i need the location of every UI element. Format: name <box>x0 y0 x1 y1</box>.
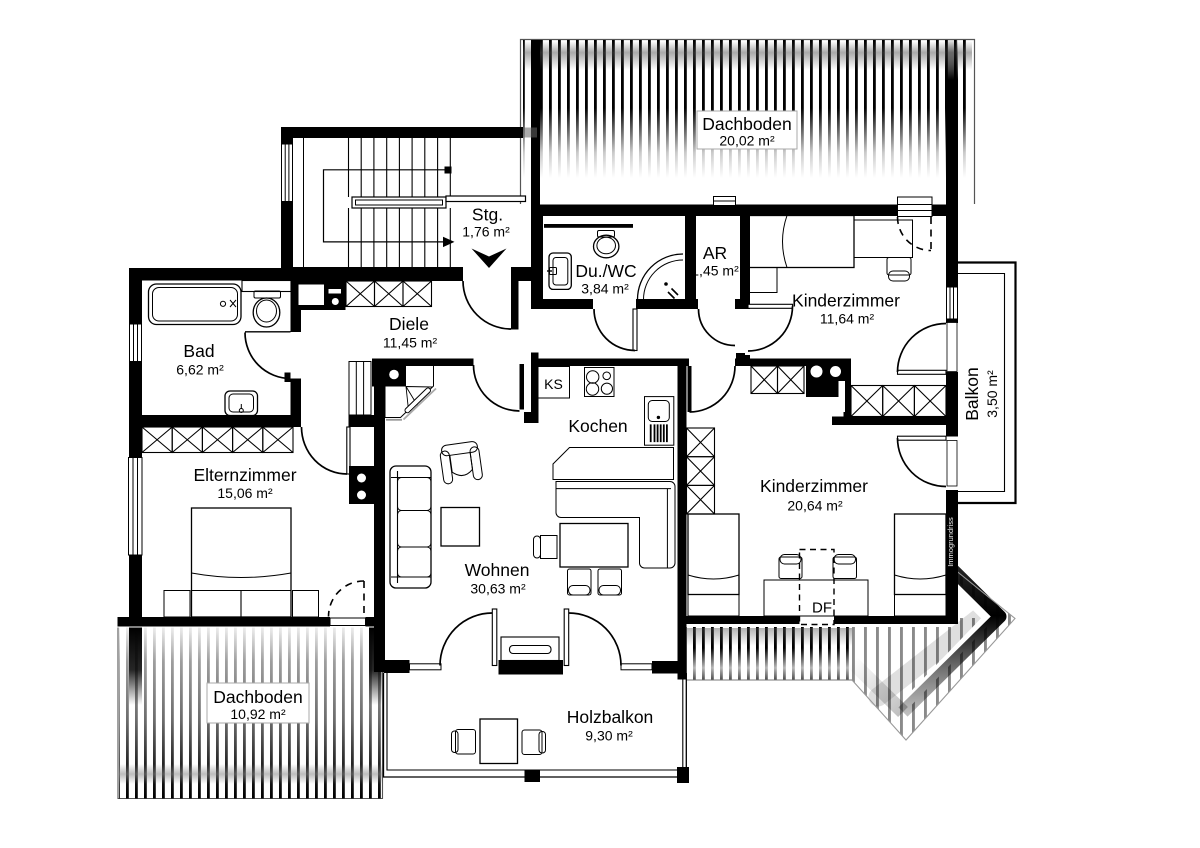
svg-text:Stg.: Stg. <box>472 205 503 225</box>
svg-text:3,50 m²: 3,50 m² <box>984 370 1000 418</box>
svg-text:15,06 m²: 15,06 m² <box>217 485 273 501</box>
svg-text:1,76 m²: 1,76 m² <box>462 224 510 240</box>
svg-text:20,64 m²: 20,64 m² <box>787 498 843 514</box>
svg-text:9,30 m²: 9,30 m² <box>585 728 633 744</box>
svg-text:6,62 m²: 6,62 m² <box>176 362 224 378</box>
svg-text:Wohnen: Wohnen <box>465 560 530 580</box>
svg-text:3,84 m²: 3,84 m² <box>581 281 629 297</box>
svg-text:AR: AR <box>703 243 727 263</box>
svg-text:Diele: Diele <box>389 314 429 334</box>
svg-text:Balkon: Balkon <box>962 367 982 421</box>
svg-text:KS: KS <box>544 376 563 392</box>
svg-text:10,92 m²: 10,92 m² <box>230 706 286 722</box>
svg-text:20,02 m²: 20,02 m² <box>719 133 775 149</box>
svg-text:Immogrundriss: Immogrundriss <box>946 517 955 567</box>
svg-text:DF: DF <box>812 600 832 617</box>
svg-text:Elternzimmer: Elternzimmer <box>193 465 296 485</box>
svg-text:Kinderzimmer: Kinderzimmer <box>792 291 900 311</box>
svg-text:11,45 m²: 11,45 m² <box>383 335 438 351</box>
svg-text:11,64 m²: 11,64 m² <box>820 311 875 327</box>
svg-text:Du./WC: Du./WC <box>575 261 636 281</box>
svg-text:Bad: Bad <box>183 341 214 361</box>
svg-text:1,45 m²: 1,45 m² <box>691 263 739 279</box>
svg-text:Kochen: Kochen <box>568 416 627 436</box>
svg-text:Dachboden: Dachboden <box>213 687 303 707</box>
svg-text:Holzbalkon: Holzbalkon <box>567 707 654 727</box>
svg-text:Kinderzimmer: Kinderzimmer <box>760 476 868 496</box>
svg-text:Dachboden: Dachboden <box>702 114 792 134</box>
svg-text:30,63 m²: 30,63 m² <box>470 581 526 597</box>
